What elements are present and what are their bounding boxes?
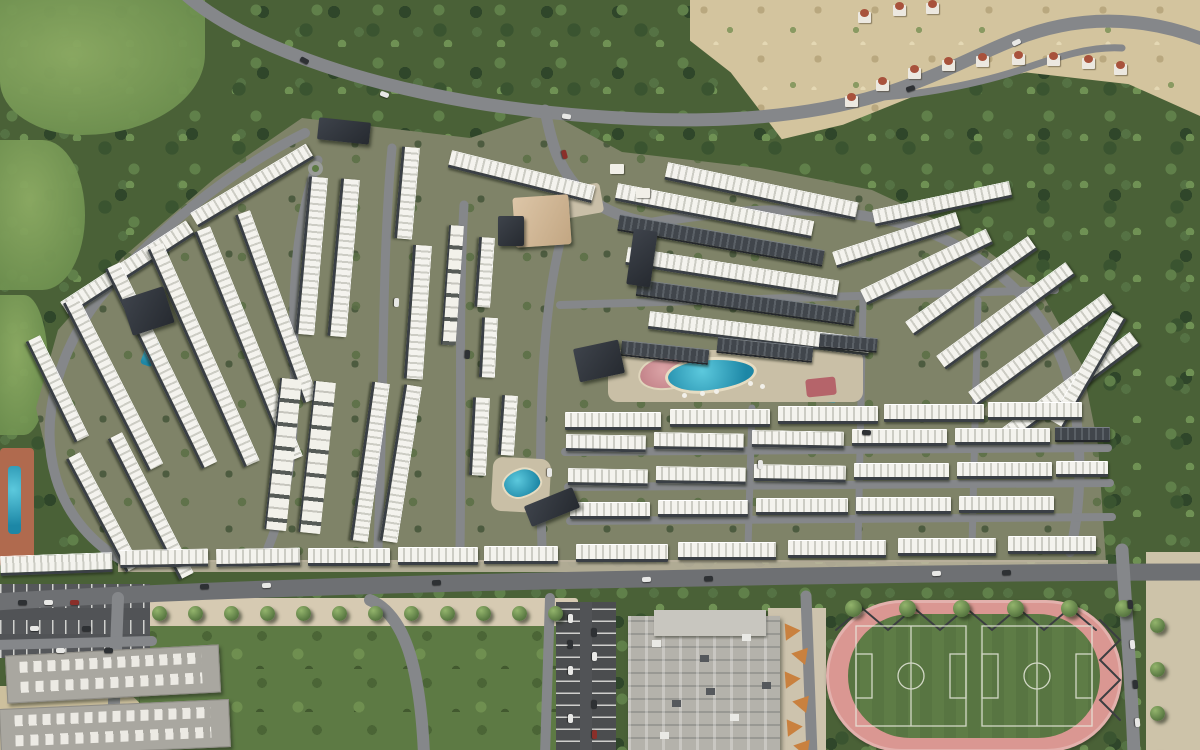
- street: [806, 596, 812, 750]
- hillside-villa: [1114, 64, 1127, 75]
- car: [200, 584, 209, 589]
- track-tree: [899, 600, 916, 617]
- street: [565, 448, 1108, 452]
- townhouse-row: [959, 496, 1054, 513]
- roadside-tree: [1150, 706, 1165, 721]
- hillside-villa: [893, 5, 906, 16]
- hillside-villa: [876, 80, 889, 91]
- gate-pavilion: [636, 188, 650, 198]
- track-tree: [953, 600, 970, 617]
- parked-car: [568, 640, 573, 649]
- townhouse-row: [570, 502, 650, 519]
- car: [1133, 680, 1139, 689]
- street: [568, 483, 1110, 487]
- rooftop-unit: [742, 634, 751, 641]
- hillside-villa: [858, 12, 871, 23]
- car: [1002, 570, 1011, 575]
- promenade-tree: [368, 606, 383, 621]
- promenade-tree: [188, 606, 203, 621]
- parked-car: [568, 666, 573, 675]
- townhouse-row: [308, 548, 390, 566]
- promenade-tree: [512, 606, 527, 621]
- cabana: [748, 381, 753, 386]
- rooftop-unit: [700, 655, 709, 662]
- car: [1130, 640, 1136, 649]
- promenade-tree: [260, 606, 275, 621]
- car: [562, 113, 572, 119]
- rooftop-unit: [706, 688, 715, 695]
- cabana: [682, 393, 687, 398]
- parked-car: [70, 600, 79, 605]
- parked-car: [82, 626, 91, 631]
- townhouse-row: [479, 317, 498, 378]
- townhouse-row: [654, 432, 744, 451]
- parked-car: [592, 652, 597, 661]
- car: [394, 298, 399, 307]
- roadside-tree: [1150, 662, 1165, 677]
- hillside-villa: [1047, 55, 1060, 66]
- townhouse-row: [398, 547, 478, 565]
- townhouse-row: [576, 544, 668, 562]
- townhouse-row: [484, 546, 558, 564]
- track-tree: [1007, 600, 1024, 617]
- parked-car: [592, 730, 597, 739]
- cabana: [700, 391, 705, 396]
- parked-car: [30, 626, 39, 631]
- clubhouse: [498, 216, 524, 246]
- townhouse-row: [754, 464, 846, 483]
- promenade-tree: [404, 606, 419, 621]
- townhouse-row: [120, 548, 208, 568]
- hillside-villa: [926, 3, 939, 14]
- street: [0, 641, 152, 645]
- car: [1135, 718, 1141, 727]
- rooftop-unit: [672, 700, 681, 707]
- rooftop-unit: [730, 714, 739, 721]
- townhouse-row: [568, 468, 648, 486]
- car: [547, 468, 552, 477]
- rooftop-unit: [762, 682, 771, 689]
- promenade-tree: [548, 606, 563, 621]
- townhouse-row: [778, 406, 878, 424]
- townhouse-row: [856, 497, 951, 514]
- hillside-villa: [942, 60, 955, 71]
- car: [642, 577, 651, 582]
- promenade-tree: [332, 606, 347, 621]
- townhouse-row: [756, 498, 848, 515]
- hillside-villa: [1012, 54, 1025, 65]
- commercial-building: [0, 699, 231, 750]
- townhouse-row: [216, 548, 300, 567]
- street: [570, 517, 1112, 521]
- car: [758, 460, 763, 469]
- townhouse-row: [884, 404, 984, 422]
- car: [262, 583, 271, 588]
- car: [432, 580, 441, 585]
- street: [370, 600, 424, 750]
- mall-building: [628, 616, 780, 750]
- car: [1128, 600, 1134, 609]
- townhouse-row: [1056, 461, 1108, 477]
- cabana: [714, 389, 719, 394]
- roundabout: [308, 161, 323, 176]
- townhouse-row: [656, 466, 746, 485]
- parked-car: [56, 648, 65, 653]
- townhouse-row: [658, 500, 748, 517]
- car: [465, 350, 470, 359]
- promenade-tree: [224, 606, 239, 621]
- cabana: [760, 384, 765, 389]
- townhouse-row: [898, 538, 996, 556]
- parked-car: [592, 700, 597, 709]
- townhouse-row: [854, 463, 949, 480]
- promenade-tree: [476, 606, 491, 621]
- townhouse-row: [955, 428, 1050, 445]
- townhouse-row: [566, 434, 646, 452]
- hillside-villa: [845, 96, 858, 107]
- townhouse-row: [1055, 427, 1110, 442]
- townhouse-row: [0, 552, 113, 576]
- townhouse-row: [752, 430, 844, 449]
- roadside-tree: [1150, 618, 1165, 633]
- rooftop-unit: [652, 640, 661, 647]
- rooftop-unit: [660, 732, 669, 739]
- mall-annex: [654, 610, 766, 636]
- parked-car: [18, 600, 27, 605]
- townhouse-row: [678, 542, 776, 560]
- car: [704, 576, 713, 581]
- townhouse-row: [957, 462, 1052, 479]
- parked-car: [568, 714, 573, 723]
- sports-court: [805, 376, 837, 397]
- promenade-tree: [440, 606, 455, 621]
- promenade-tree: [152, 606, 167, 621]
- lap-pool: [8, 466, 21, 534]
- parked-car: [568, 614, 573, 623]
- pitch-markings: [848, 614, 1100, 738]
- street: [748, 408, 752, 548]
- shade-canopy-zigzag: [1100, 620, 1120, 720]
- hillside-villa: [976, 56, 989, 67]
- parked-car: [104, 648, 113, 653]
- parked-car: [592, 628, 597, 637]
- townhouse-row: [670, 409, 770, 427]
- hillside-villa: [1082, 58, 1095, 69]
- parked-car: [44, 600, 53, 605]
- townhouse-row: [788, 540, 886, 558]
- track-tree: [1061, 600, 1078, 617]
- track-tree: [845, 600, 862, 617]
- aerial-masterplan-view: [0, 0, 1200, 750]
- promenade-tree: [296, 606, 311, 621]
- car: [932, 571, 941, 576]
- townhouse-row: [1008, 536, 1096, 554]
- car: [862, 430, 871, 435]
- gate-pavilion: [610, 164, 624, 174]
- townhouse-row: [565, 412, 661, 430]
- hillside-villa: [908, 68, 921, 79]
- townhouse-row: [988, 402, 1082, 420]
- street: [545, 598, 550, 750]
